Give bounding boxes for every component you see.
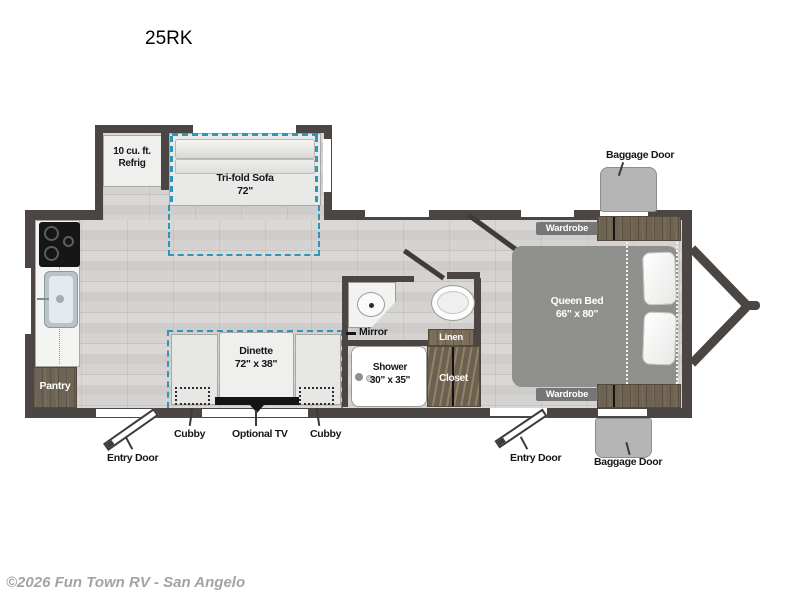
entry-door-left-label: Entry Door <box>107 452 158 464</box>
tv-bar <box>215 397 299 405</box>
toilet-bowl <box>437 291 469 314</box>
floorplan-page: 25RK 10 cu. ft. Refrig Tri-fold Sofa 72" <box>0 0 800 600</box>
wardrobe-divider <box>613 217 615 240</box>
wardrobe-top <box>597 216 681 241</box>
sill-baggage-bottom <box>598 409 647 416</box>
leader-line <box>125 436 133 449</box>
burner-icon <box>44 246 59 261</box>
cooktop <box>39 222 80 267</box>
door-edge <box>497 438 506 446</box>
closet-label: Closet <box>427 372 480 385</box>
leader-line <box>255 410 257 426</box>
cubby-right-outline <box>299 387 334 405</box>
window-top-2 <box>521 207 574 217</box>
cubby-left-label: Cubby <box>174 428 205 440</box>
door-edge <box>106 440 115 448</box>
queen-bed-label: Queen Bed 66" x 80" <box>527 295 627 321</box>
sofa-slide-dash-top <box>172 133 318 136</box>
linen-label: Linen <box>428 331 474 344</box>
faucet-base-icon <box>56 295 64 303</box>
window-slideout-top <box>193 124 296 133</box>
baggage-door-bottom-flap <box>595 418 652 458</box>
shower-label: Shower 30" x 35" <box>352 362 428 387</box>
baggage-door-bottom-label: Baggage Door <box>594 456 662 468</box>
wardrobe-bottom-label: Wardrobe <box>536 388 598 401</box>
leader-line <box>520 436 528 449</box>
sofa-slide-dash-left <box>170 136 173 202</box>
sofa-label: Tri-fold Sofa 72" <box>195 172 295 197</box>
slideout-travel-outline <box>168 205 320 256</box>
faucet-icon <box>37 298 49 300</box>
entry-door-right-label: Entry Door <box>510 452 561 464</box>
model-title: 25RK <box>145 28 193 50</box>
pantry-label: Pantry <box>33 380 77 393</box>
refrigerator-label: 10 cu. ft. Refrig <box>102 146 162 170</box>
mirror-label: Mirror <box>359 326 388 338</box>
fridge-divider-wall <box>161 133 169 190</box>
pillow <box>642 311 677 365</box>
hitch-coupler <box>741 301 760 310</box>
pillow <box>642 251 677 305</box>
copyright-text: ©2026 Fun Town RV - San Angelo <box>6 574 245 591</box>
sofa-slide-dash-right <box>315 136 318 202</box>
mirror-leader <box>346 332 356 335</box>
burner-icon <box>63 236 74 247</box>
wardrobe-divider <box>613 385 615 407</box>
bath-wall-top <box>342 276 414 282</box>
window-top-1 <box>365 207 429 217</box>
sofa-backrest <box>175 139 315 159</box>
toilet <box>431 285 475 321</box>
cubby-left-outline <box>175 387 210 405</box>
hitch-upper-bar <box>689 245 750 307</box>
wardrobe-bottom <box>597 384 681 408</box>
window-slideout-right <box>323 139 331 192</box>
vanity-drain-icon <box>369 303 374 308</box>
burner-icon <box>44 226 59 241</box>
tv-mount-icon <box>250 405 264 413</box>
cubby-right-label: Cubby <box>310 428 341 440</box>
wardrobe-top-label: Wardrobe <box>536 222 598 235</box>
optional-tv-label: Optional TV <box>232 428 288 440</box>
hitch-lower-bar <box>689 304 750 366</box>
baggage-door-top-flap <box>600 167 657 212</box>
window-rear-wall <box>24 268 31 334</box>
baggage-door-top-label: Baggage Door <box>606 149 674 161</box>
kitchen-sink <box>44 271 78 328</box>
dinette-label: Dinette 72" x 38" <box>206 345 306 370</box>
